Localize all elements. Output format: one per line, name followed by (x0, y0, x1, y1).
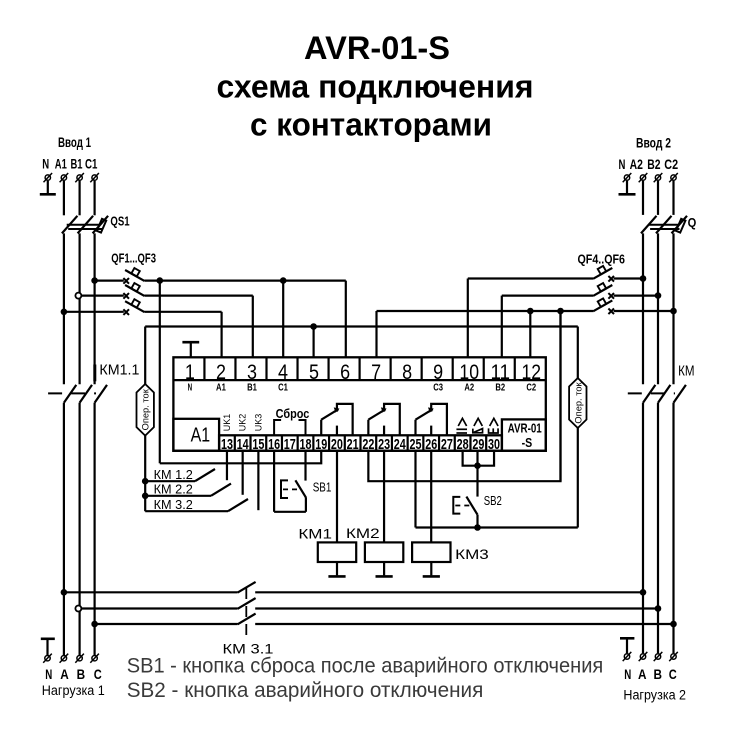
svg-text:В: В (77, 666, 86, 682)
svg-text:25: 25 (409, 436, 421, 453)
svg-text:N: N (45, 666, 52, 682)
svg-text:Опер. ток: Опер. ток (573, 381, 583, 423)
svg-text:-S: -S (522, 435, 533, 450)
svg-text:UK2: UK2 (238, 414, 248, 432)
svg-text:В: В (653, 666, 662, 682)
svg-text:N: N (42, 156, 49, 172)
svg-text:15: 15 (252, 436, 264, 453)
svg-text:28: 28 (457, 436, 469, 453)
svg-text:19: 19 (315, 436, 327, 453)
svg-text:A1: A1 (216, 381, 226, 393)
svg-text:КМ 3.2: КМ 3.2 (154, 498, 193, 512)
svg-text:Нагрузка 1: Нагрузка 1 (42, 683, 105, 698)
svg-text:16: 16 (268, 436, 280, 453)
svg-text:КМ1: КМ1 (298, 526, 332, 541)
svg-text:Ввод 2: Ввод 2 (636, 136, 671, 151)
svg-text:B2: B2 (495, 381, 505, 393)
svg-text:QF1...QF3: QF1...QF3 (111, 251, 156, 266)
svg-text:QF4..QF6: QF4..QF6 (578, 252, 626, 267)
svg-text:с контакторами: с контакторами (250, 107, 492, 143)
svg-text:C3: C3 (433, 381, 443, 393)
svg-text:5: 5 (309, 361, 319, 384)
svg-text:Q: Q (688, 215, 697, 230)
svg-text:C2: C2 (526, 381, 536, 393)
svg-text:B1: B1 (247, 381, 257, 393)
svg-text:С: С (94, 666, 102, 682)
svg-text:SB1 - кнопка сброса после авар: SB1 - кнопка сброса после аварийного отк… (127, 655, 604, 678)
svg-text:18: 18 (300, 436, 312, 453)
svg-text:N: N (624, 666, 631, 682)
svg-text:B1: B1 (71, 156, 83, 172)
svg-text:А: А (60, 666, 69, 682)
svg-text:C1: C1 (278, 381, 288, 393)
svg-text:C2: C2 (664, 156, 678, 172)
svg-text:N: N (188, 381, 193, 393)
svg-text:КМ2: КМ2 (346, 526, 380, 541)
svg-text:А: А (638, 666, 647, 682)
svg-text:14: 14 (237, 436, 249, 453)
svg-text:20: 20 (331, 436, 343, 453)
svg-text:30: 30 (488, 436, 500, 453)
svg-text:UK1: UK1 (222, 414, 232, 432)
svg-text:КМ 2.2: КМ 2.2 (154, 483, 193, 497)
svg-text:A1: A1 (191, 425, 211, 447)
svg-text:C1: C1 (85, 156, 98, 172)
svg-text:A2: A2 (630, 156, 643, 172)
svg-text:29: 29 (472, 436, 484, 453)
svg-text:КМ 1.2: КМ 1.2 (154, 468, 193, 482)
svg-text:Опер. ток: Опер. ток (141, 388, 151, 430)
svg-text:22: 22 (362, 436, 374, 453)
svg-text:7: 7 (371, 361, 381, 384)
svg-text:AVR-01: AVR-01 (508, 420, 542, 435)
svg-text:A2: A2 (464, 381, 474, 393)
svg-text:24: 24 (394, 436, 406, 453)
svg-text:SB2: SB2 (484, 493, 502, 508)
svg-text:Нагрузка 2: Нагрузка 2 (623, 688, 686, 703)
svg-text:13: 13 (221, 436, 233, 453)
svg-text:Сброс: Сброс (276, 406, 310, 421)
svg-text:21: 21 (347, 436, 359, 453)
svg-text:схема подключения: схема подключения (217, 69, 534, 105)
svg-text:6: 6 (340, 361, 350, 384)
svg-text:КМ3: КМ3 (455, 547, 489, 562)
svg-text:17: 17 (284, 436, 296, 453)
svg-text:8: 8 (402, 361, 412, 384)
svg-text:Ввод 1: Ввод 1 (58, 135, 91, 150)
svg-text:SB1: SB1 (313, 480, 332, 495)
svg-text:26: 26 (425, 436, 437, 453)
svg-text:27: 27 (441, 436, 453, 453)
svg-text:SB2 - кнопка аварийного откл: SB2 - кнопка аварийного отключения (127, 679, 484, 702)
svg-text:A1: A1 (55, 156, 67, 172)
svg-text:UK3: UK3 (253, 414, 263, 432)
svg-text:КМ: КМ (678, 363, 694, 380)
svg-text:N: N (618, 156, 625, 172)
svg-text:AVR-01-S: AVR-01-S (304, 30, 450, 66)
svg-text:23: 23 (378, 436, 390, 453)
svg-text:B2: B2 (647, 156, 660, 172)
svg-text:КМ1.1: КМ1.1 (99, 362, 139, 379)
svg-text:QS1: QS1 (110, 213, 129, 228)
svg-text:С: С (669, 666, 677, 682)
